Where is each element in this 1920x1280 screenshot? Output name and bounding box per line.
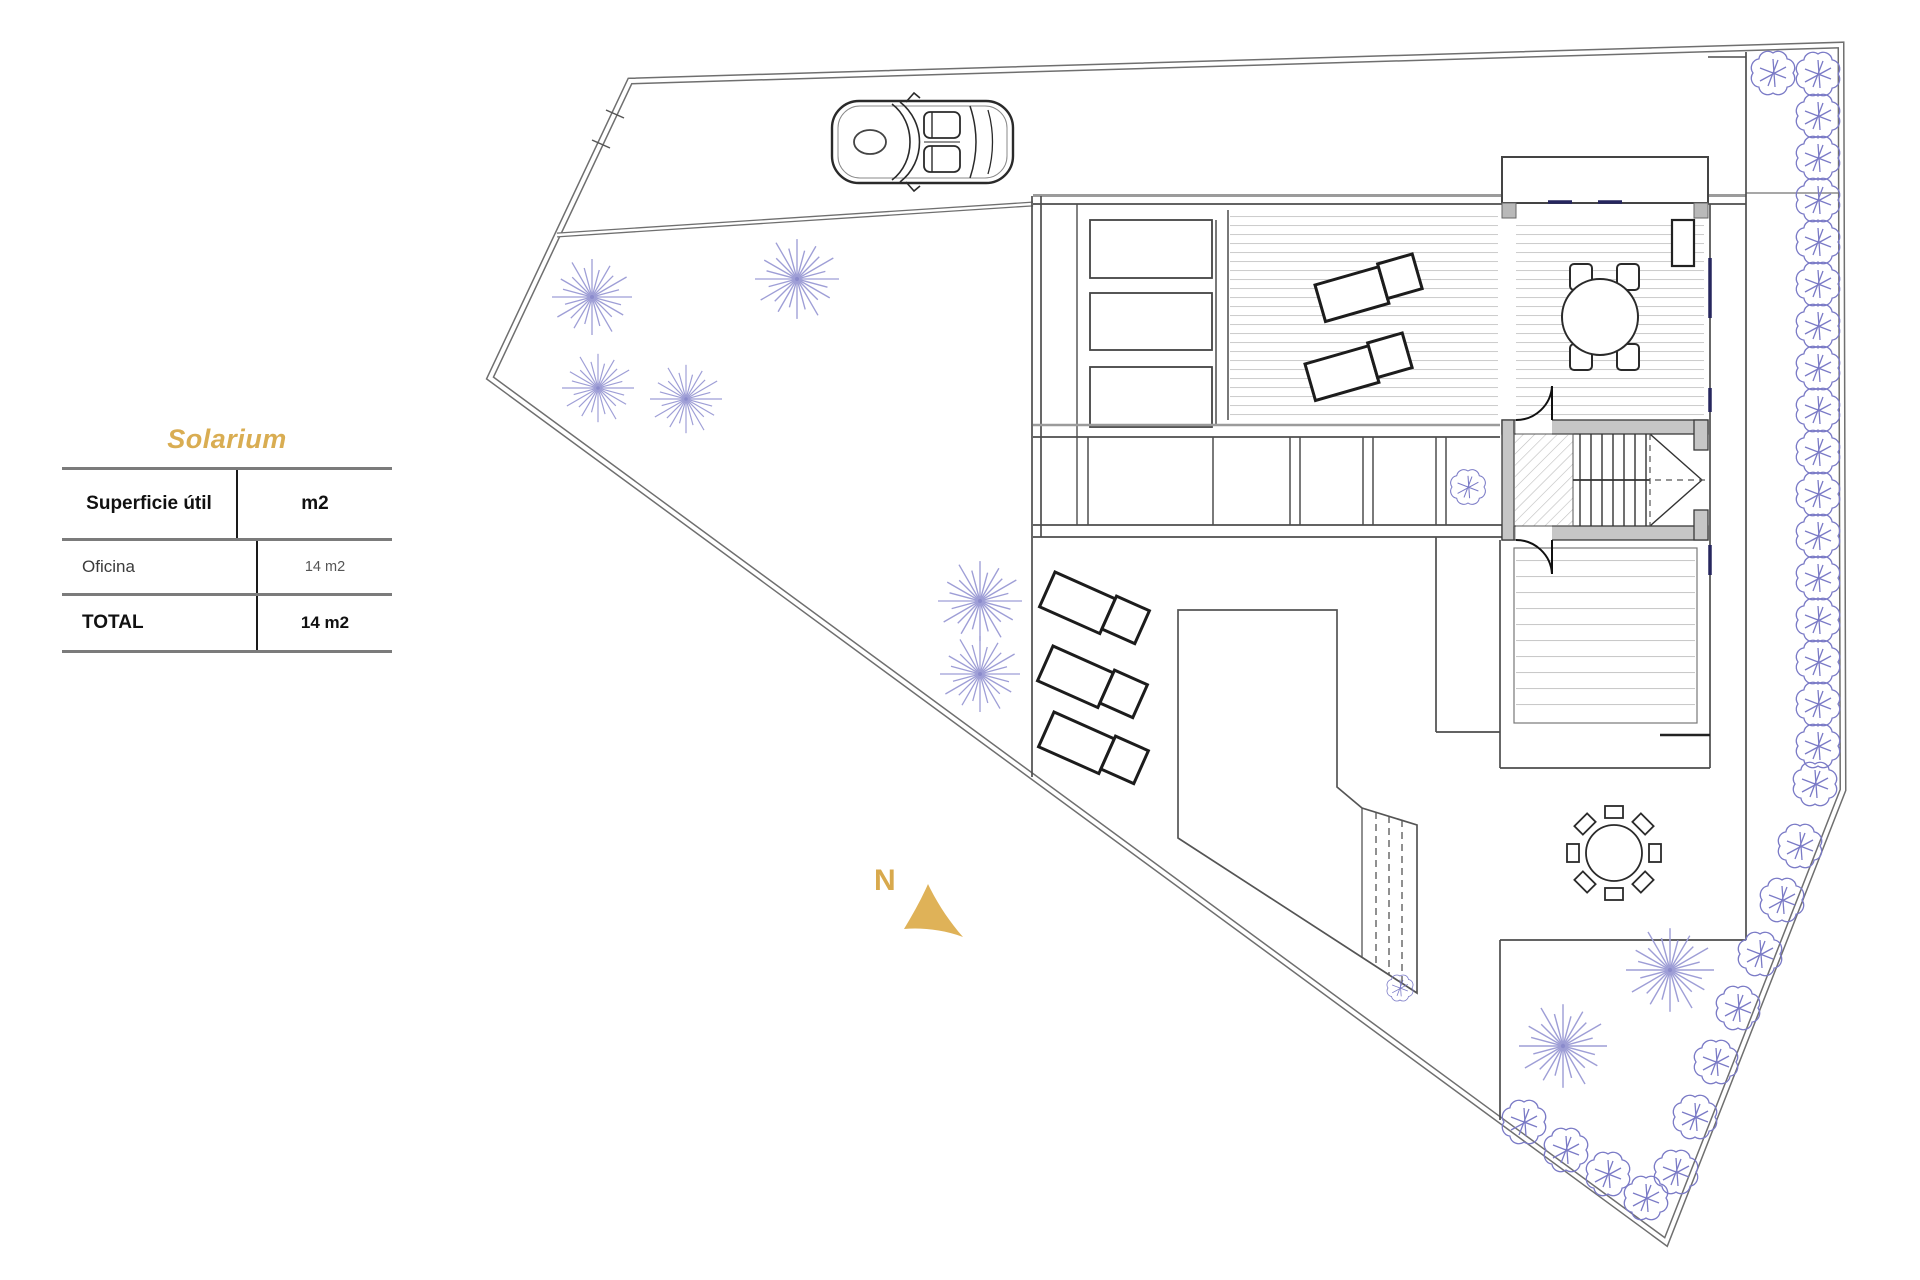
header-m2: m2 [238, 470, 392, 538]
shrub-icon [1796, 598, 1839, 641]
north-arrow-icon [904, 884, 963, 937]
shrub-icon [1451, 470, 1486, 505]
round-table-icon [1567, 806, 1661, 900]
tree-icon [940, 636, 1020, 712]
shrub-icon [1751, 51, 1794, 94]
driveway-edge [557, 204, 1033, 235]
shrub-icon [1796, 682, 1839, 725]
shrub-icon [1796, 136, 1839, 179]
shrub-icon [1796, 262, 1839, 305]
sun-lounger-icon [1040, 569, 1150, 648]
tree-icon [650, 365, 722, 433]
sun-lounger-icon [1039, 709, 1149, 788]
lower-deck [1500, 540, 1710, 768]
tree-icon [1519, 1004, 1607, 1088]
sun-lounger-icon [1038, 643, 1148, 722]
shrub-icon [1796, 514, 1839, 557]
planter-rects [1090, 220, 1212, 427]
sideboard-icon [1672, 220, 1694, 266]
legend-table: Superficie útil m2 Oficina 14 m2 TOTAL 1… [62, 467, 392, 653]
table-header-row: Superficie útil m2 [62, 470, 392, 538]
row-value: 14 m2 [258, 541, 392, 593]
shrub-icon [1796, 556, 1839, 599]
shrub-icon [1796, 346, 1839, 389]
shrub-icon [1796, 472, 1839, 515]
header-superficie: Superficie útil [62, 470, 238, 538]
main-deck-hatch [1230, 212, 1498, 422]
tree-icon [562, 354, 634, 422]
north-label: N [874, 864, 896, 898]
stairs-icon [1573, 434, 1708, 526]
row-label: Oficina [62, 541, 258, 593]
tree-icon [552, 259, 632, 335]
shrub-icon [1796, 94, 1839, 137]
total-label: TOTAL [62, 596, 258, 650]
shrub-icon [1796, 220, 1839, 263]
solarium-plan-page: Solarium Superficie útil m2 Oficina 14 m… [0, 0, 1920, 1280]
shrub-icon [1796, 724, 1839, 767]
shrub-icon [1796, 640, 1839, 683]
legend-title: Solarium [62, 424, 392, 455]
tree-icon [938, 561, 1022, 641]
car-icon [832, 93, 1013, 191]
table-row: Oficina 14 m2 [62, 538, 392, 593]
shrub-icon [1793, 762, 1836, 805]
shrub-icon [1796, 388, 1839, 431]
total-value: 14 m2 [258, 596, 392, 650]
pergola-cells [1088, 437, 1446, 525]
dining-table-icon [1562, 264, 1639, 370]
roof-bump [1502, 157, 1708, 203]
pool [1178, 610, 1417, 993]
shrub-icon [1796, 304, 1839, 347]
table-total-row: TOTAL 14 m2 [62, 593, 392, 650]
building [1032, 52, 1838, 1120]
shrub-icon [1796, 178, 1839, 221]
shrub-icon [1796, 430, 1839, 473]
shrub-icon [1796, 52, 1839, 95]
shaft-hatch [1514, 434, 1573, 526]
tree-icon [755, 239, 839, 319]
legend-panel: Solarium Superficie útil m2 Oficina 14 m… [62, 424, 392, 653]
